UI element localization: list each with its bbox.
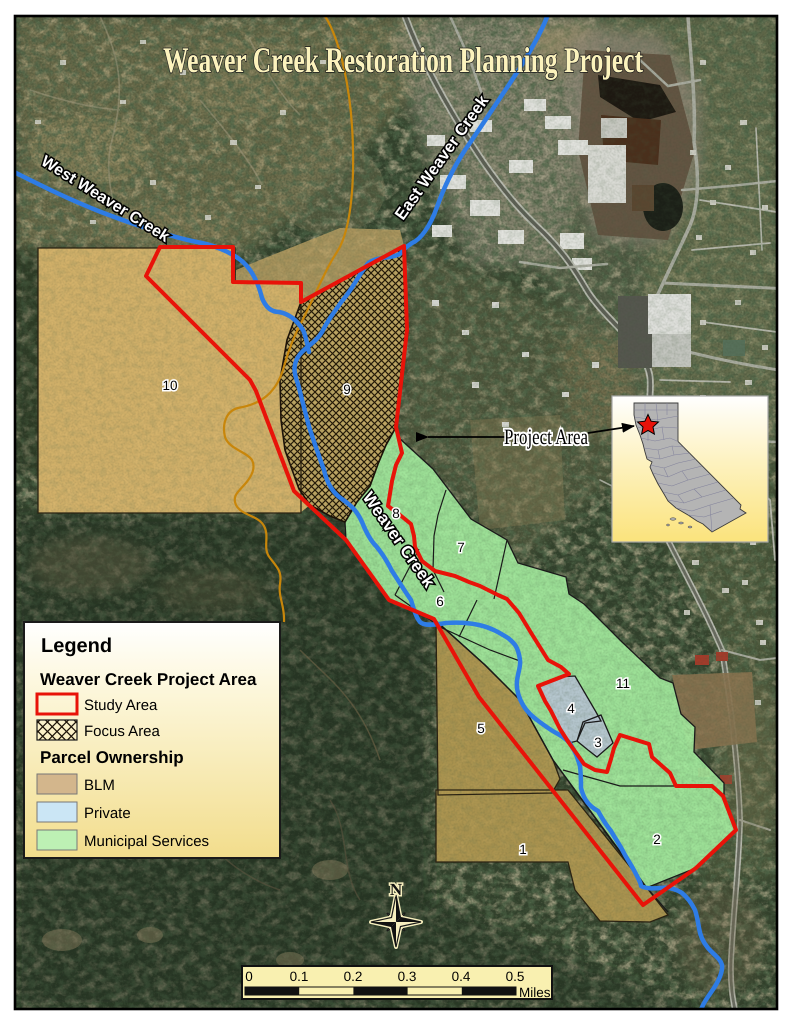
svg-text:0: 0 bbox=[245, 969, 253, 984]
svg-text:8: 8 bbox=[392, 506, 400, 521]
svg-text:N: N bbox=[390, 880, 403, 899]
svg-text:0.5: 0.5 bbox=[506, 969, 525, 984]
svg-text:6: 6 bbox=[436, 594, 444, 609]
svg-text:3: 3 bbox=[594, 735, 602, 750]
svg-text:Miles: Miles bbox=[519, 985, 551, 1000]
svg-text:Study Area: Study Area bbox=[84, 697, 158, 714]
svg-text:0.2: 0.2 bbox=[344, 969, 363, 984]
svg-text:0.4: 0.4 bbox=[452, 969, 471, 984]
svg-text:Private: Private bbox=[84, 805, 131, 822]
svg-text:11: 11 bbox=[616, 676, 630, 691]
svg-text:5: 5 bbox=[477, 721, 485, 736]
svg-text:0.1: 0.1 bbox=[290, 969, 309, 984]
svg-text:Focus Area: Focus Area bbox=[84, 723, 161, 740]
svg-text:7: 7 bbox=[457, 540, 465, 555]
svg-text:Legend: Legend bbox=[41, 635, 112, 657]
svg-text:0.3: 0.3 bbox=[398, 969, 417, 984]
svg-text:2: 2 bbox=[653, 832, 661, 847]
svg-text:10: 10 bbox=[162, 378, 177, 393]
svg-text:Weaver Creek Restoration Plann: Weaver Creek Restoration Planning Projec… bbox=[163, 40, 643, 80]
svg-text:Weaver Creek Project Area: Weaver Creek Project Area bbox=[40, 670, 257, 689]
svg-text:Project Area: Project Area bbox=[504, 424, 588, 449]
svg-text:9: 9 bbox=[343, 382, 351, 397]
svg-text:1: 1 bbox=[519, 842, 527, 857]
svg-text:Municipal Services: Municipal Services bbox=[84, 833, 209, 850]
svg-text:BLM: BLM bbox=[84, 777, 115, 794]
svg-text:4: 4 bbox=[567, 701, 575, 716]
svg-text:Parcel Ownership: Parcel Ownership bbox=[40, 748, 184, 767]
